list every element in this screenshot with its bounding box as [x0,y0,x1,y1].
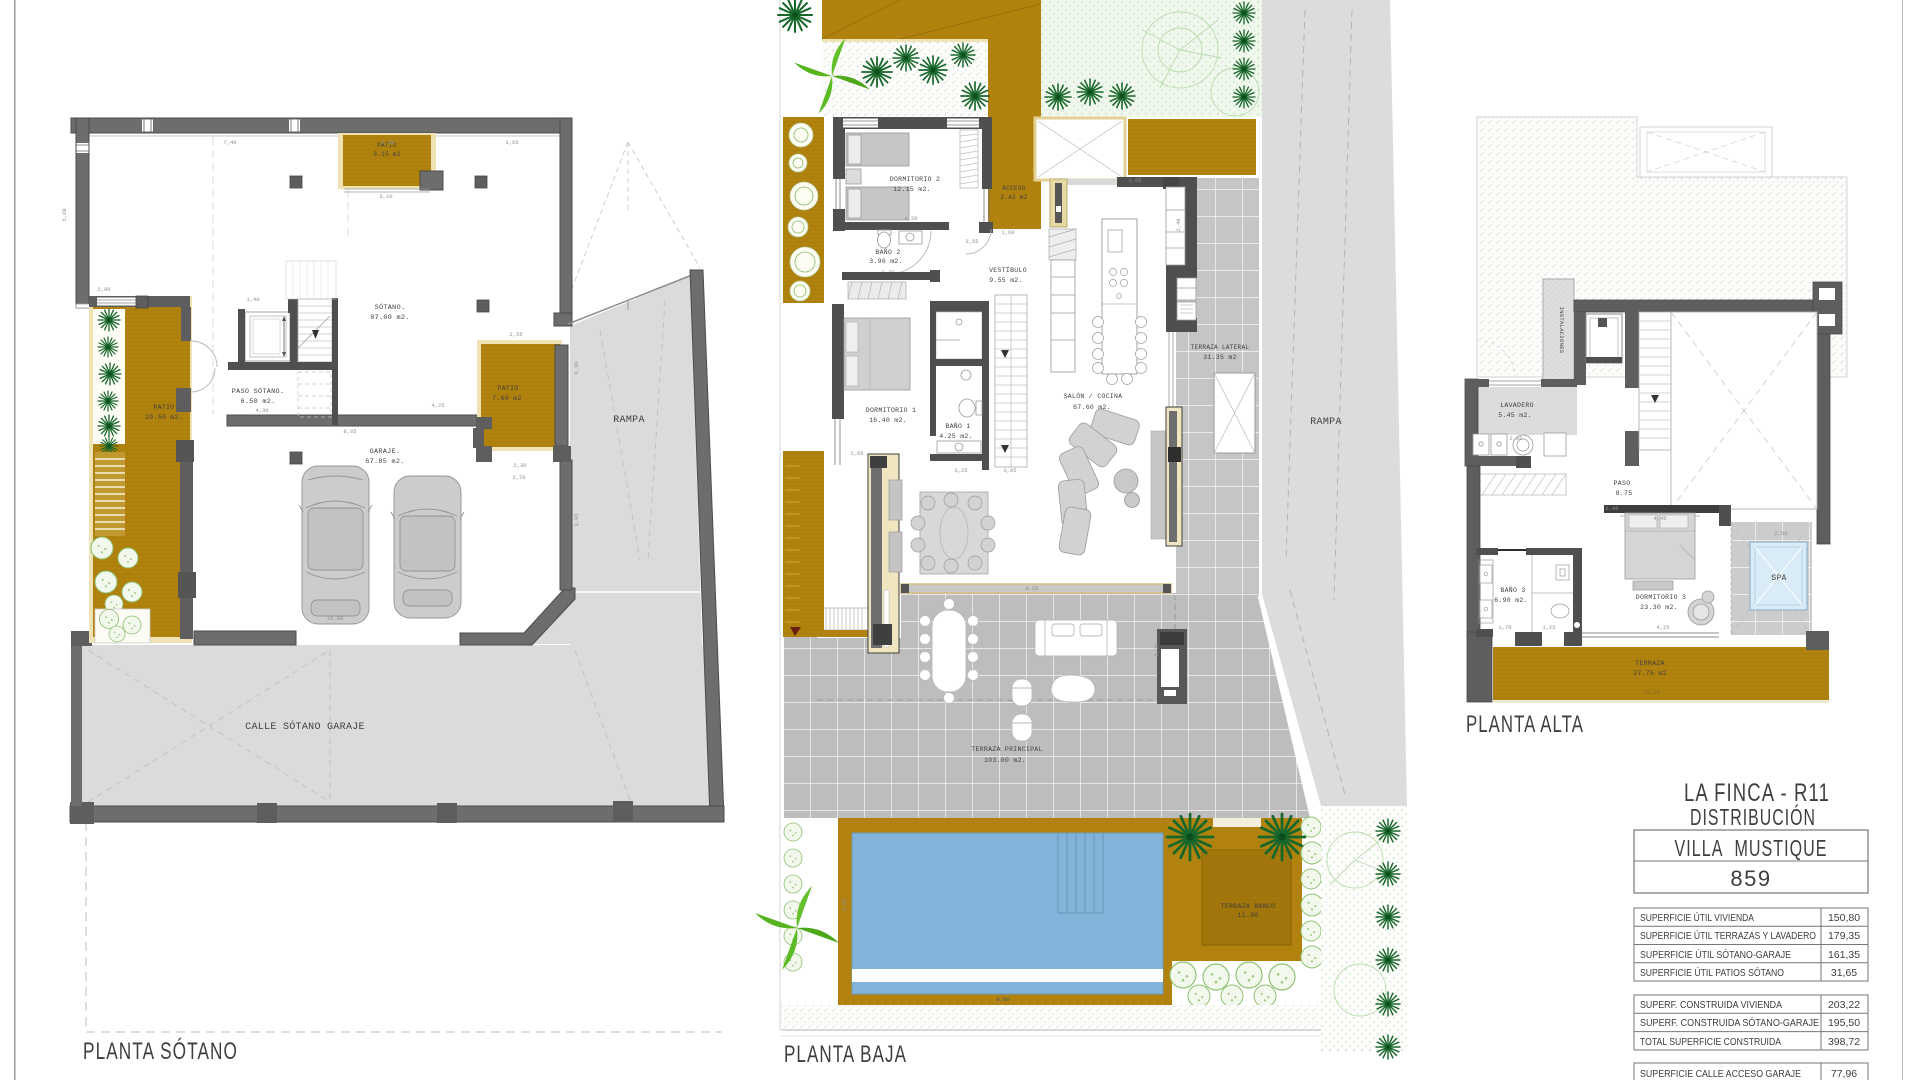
svg-text:3,65: 3,65 [1128,177,1141,184]
svg-text:8,65: 8,65 [343,428,356,435]
svg-text:DORMITORIO 3: DORMITORIO 3 [1636,594,1686,601]
svg-text:ACCESO: ACCESO [1002,185,1026,192]
svg-text:7.60 m2: 7.60 m2 [492,395,521,402]
svg-text:2,30: 2,30 [1153,643,1160,656]
svg-text:1,70: 1,70 [1498,624,1511,631]
svg-text:27.75 m2: 27.75 m2 [1633,670,1667,677]
svg-text:8,65: 8,65 [1025,585,1038,592]
svg-text:31,65: 31,65 [1831,967,1857,979]
svg-text:LA FINCA - R11: LA FINCA - R11 [1684,779,1830,807]
svg-text:SUPERF. CONSTRUIDA VIVIENDA: SUPERF. CONSTRUIDA VIVIENDA [1640,999,1782,1011]
svg-text:4,00: 4,00 [841,898,848,911]
svg-text:179,35: 179,35 [1828,930,1860,942]
svg-text:3,25: 3,25 [954,467,967,474]
svg-text:6.50 m2.: 6.50 m2. [240,398,275,406]
svg-text:4,25: 4,25 [431,402,444,409]
svg-text:103.00 m2.: 103.00 m2. [984,757,1026,764]
svg-text:7,40: 7,40 [223,139,236,146]
svg-text:PLANTA BAJA: PLANTA BAJA [784,1041,907,1068]
svg-text:2,95: 2,95 [1509,435,1522,442]
svg-text:2,50: 2,50 [1774,530,1787,537]
svg-text:29.50 m2.: 29.50 m2. [145,414,183,421]
svg-text:2,70: 2,70 [512,474,525,481]
svg-text:VESTÍBULO: VESTÍBULO [989,266,1027,274]
svg-text:PATIO: PATIO [497,385,518,392]
svg-text:DORMITORIO 1: DORMITORIO 1 [866,407,916,414]
svg-text:9,60: 9,60 [996,996,1009,1003]
svg-text:2,65: 2,65 [850,450,863,457]
svg-text:2,40: 2,40 [1175,218,1182,231]
svg-text:203,22: 203,22 [1828,999,1860,1011]
svg-text:2,30: 2,30 [513,462,526,469]
svg-text:1,60: 1,60 [1001,229,1014,236]
svg-text:BAÑO 3: BAÑO 3 [1500,586,1525,594]
svg-text:LAVADERO: LAVADERO [1500,402,1534,409]
svg-text:RAMPA: RAMPA [1310,417,1342,428]
svg-text:2,30: 2,30 [381,139,394,146]
svg-text:31.35 m2: 31.35 m2 [1203,354,1237,361]
svg-text:4.25 m2.: 4.25 m2. [939,433,973,440]
svg-text:2,90: 2,90 [97,286,110,293]
svg-text:SUPERFICIE ÚTIL PATIOS SÓTANO: SUPERFICIE ÚTIL PATIOS SÓTANO [1640,966,1784,979]
svg-text:3,10: 3,10 [379,193,392,200]
svg-text:11.90: 11.90 [1237,912,1258,919]
svg-text:TOTAL SUPERFICIE CONSTRUIDA: TOTAL SUPERFICIE CONSTRUIDA [1640,1036,1781,1048]
svg-text:161,35: 161,35 [1828,949,1860,961]
svg-text:SUPERF. CONSTRUIDA SÓTANO-GARA: SUPERF. CONSTRUIDA SÓTANO-GARAJE [1640,1016,1819,1029]
svg-text:10,20: 10,20 [1644,689,1661,696]
svg-text:SPA: SPA [1771,574,1786,583]
svg-text:859: 859 [1730,866,1771,891]
svg-text:SÓTANO.: SÓTANO. [375,302,406,312]
svg-text:9.55 m2.: 9.55 m2. [989,277,1023,284]
svg-text:VILLA MUSTIQUE: VILLA MUSTIQUE [1675,835,1828,861]
svg-text:3,05: 3,05 [1003,467,1016,474]
svg-text:2,95: 2,95 [1605,505,1618,512]
svg-text:8.75: 8.75 [1616,490,1633,497]
svg-text:PASO SÓTANO.: PASO SÓTANO. [232,386,285,396]
svg-text:PLANTA ALTA: PLANTA ALTA [1466,711,1584,738]
svg-text:23.30 m2.: 23.30 m2. [1640,604,1678,611]
svg-text:195,50: 195,50 [1828,1017,1860,1029]
svg-text:4,45: 4,45 [1653,515,1666,522]
svg-text:4,30: 4,30 [255,407,268,414]
svg-text:DISTRIBUCIÓN: DISTRIBUCIÓN [1690,804,1816,830]
svg-text:PLANTA SÓTANO: PLANTA SÓTANO [83,1038,238,1065]
svg-text:5,20: 5,20 [61,208,68,221]
svg-text:87.00 m2.: 87.00 m2. [370,314,409,322]
svg-text:PATIO: PATIO [153,404,174,411]
svg-text:1,40: 1,40 [246,296,259,303]
svg-text:GARAJE.: GARAJE. [370,448,401,456]
svg-text:TERRAZA PRINCIPAL: TERRAZA PRINCIPAL [971,746,1042,753]
svg-text:TERRAZA LATERAL: TERRAZA LATERAL [1191,344,1250,351]
svg-text:4,20: 4,20 [904,215,917,222]
svg-text:4,25: 4,25 [1656,624,1669,631]
svg-text:2,55: 2,55 [509,331,522,338]
svg-text:TERRAZA BANCO: TERRAZA BANCO [1221,903,1276,910]
svg-text:BAÑO 2: BAÑO 2 [875,248,900,256]
svg-text:PASO: PASO [1614,480,1631,487]
svg-text:SUPERFICIE ÚTIL VIVIENDA: SUPERFICIE ÚTIL VIVIENDA [1640,911,1754,924]
svg-text:150,80: 150,80 [1828,912,1860,924]
svg-text:3.90 m2.: 3.90 m2. [869,258,903,265]
svg-text:77,96: 77,96 [1831,1068,1857,1080]
svg-text:SUPERFICIE ÚTIL TERRAZAS Y LAV: SUPERFICIE ÚTIL TERRAZAS Y LAVADERO [1640,929,1816,942]
svg-text:SALÓN / COCINA: SALÓN / COCINA [1064,391,1123,400]
svg-text:3.15 m2: 3.15 m2 [373,151,400,158]
svg-text:TERRAZA: TERRAZA [1635,660,1664,667]
svg-text:10,00: 10,00 [327,615,344,622]
svg-text:DORMITORIO 2: DORMITORIO 2 [890,176,940,183]
svg-text:12.15 m2.: 12.15 m2. [893,186,931,193]
svg-text:3,55: 3,55 [965,238,978,245]
svg-text:INSTALACIONES: INSTALACIONES [1558,307,1565,354]
svg-text:RAMPA: RAMPA [613,415,645,426]
svg-text:6.90 m2.: 6.90 m2. [1494,597,1528,604]
svg-text:3,95: 3,95 [573,513,580,526]
svg-text:398,72: 398,72 [1828,1036,1860,1048]
svg-text:SUPERFICIE CALLE ACCESO GARAJE: SUPERFICIE CALLE ACCESO GARAJE [1640,1068,1801,1080]
svg-text:16.40 m2.: 16.40 m2. [869,417,907,424]
svg-text:2.42 m2: 2.42 m2 [1000,194,1027,201]
svg-text:CALLE SÓTANO GARAJE: CALLE SÓTANO GARAJE [245,719,365,733]
svg-text:SUPERFICIE ÚTIL SÓTANO-GARAJE: SUPERFICIE ÚTIL SÓTANO-GARAJE [1640,948,1791,961]
svg-text:3,65: 3,65 [505,139,518,146]
svg-text:5.45 m2.: 5.45 m2. [1498,412,1532,419]
svg-text:1,25: 1,25 [1542,624,1555,631]
svg-text:6,30: 6,30 [573,361,580,374]
svg-text:BAÑO 1: BAÑO 1 [945,422,970,430]
svg-text:67.85 m2.: 67.85 m2. [365,458,404,466]
